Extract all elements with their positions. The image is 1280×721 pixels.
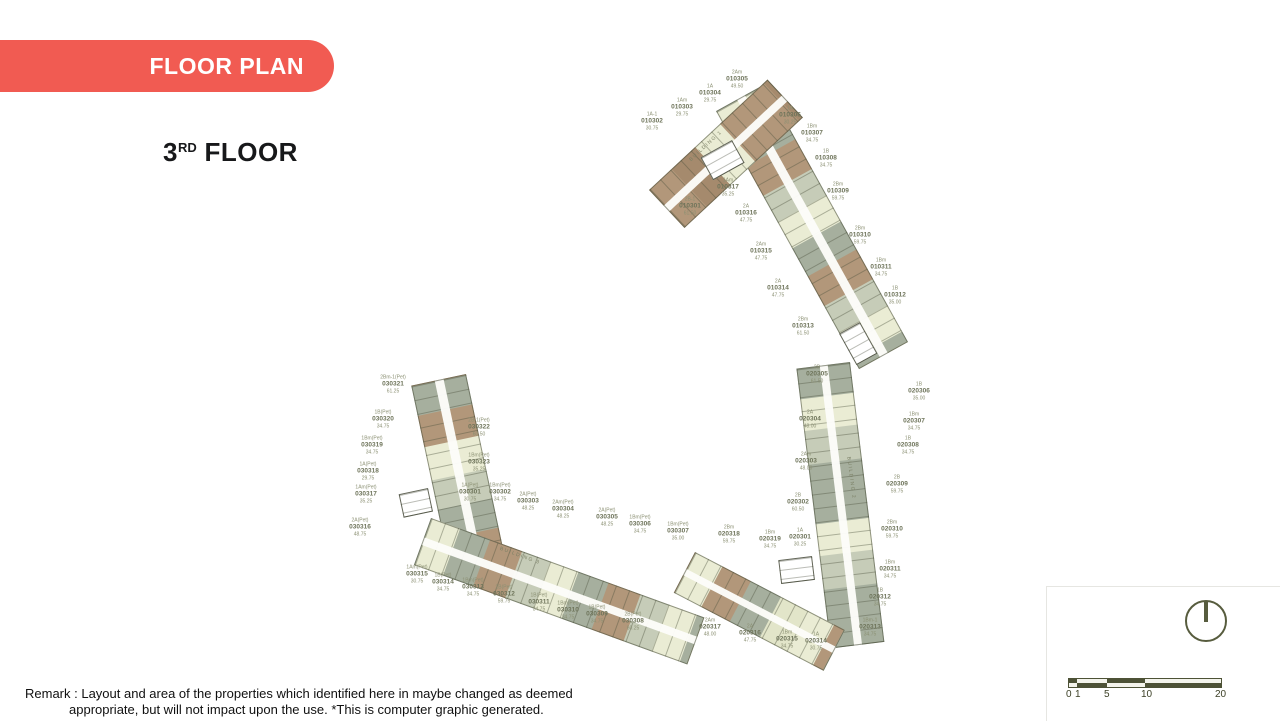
unit-label: 1B02030635.00 (908, 382, 930, 403)
unit-label-line: 34.75 (586, 619, 608, 625)
unit-label-line: 34.75 (432, 587, 454, 593)
unit-label: 1A02031430.75 (805, 632, 827, 653)
unit-label-line: 49.50 (726, 84, 748, 90)
unit-label: 1Bm(Pet)03031934.75 (361, 436, 383, 457)
unit-label-line: 59.75 (493, 599, 515, 605)
unit-label-line: 020311 (879, 566, 900, 574)
unit-label-line: 60.50 (787, 507, 809, 513)
unit-label-line: 010310 (849, 232, 871, 240)
unit-label: 1Bm(Pet)03030234.75 (489, 483, 511, 504)
unit-label-line: 020306 (908, 388, 930, 396)
unit-label-line: 48.25 (596, 522, 618, 528)
unit-label-line: 60.25 (622, 626, 644, 632)
unit-label: 1B(Pet)03031134.75 (528, 593, 549, 614)
unit-label-line: 010303 (671, 104, 693, 112)
unit-label-line: 030317 (355, 491, 377, 499)
unit-label: 1Bm(Pet)03030735.00 (667, 522, 689, 543)
floor-number: 3 (163, 137, 178, 167)
unit-label: 2A01031647.75 (735, 204, 757, 225)
scale-segment (1145, 683, 1221, 687)
unit-label-line: 30.75 (805, 646, 827, 652)
unit-label: 2Am01030549.50 (726, 70, 748, 91)
unit-label-line: 34.75 (372, 424, 394, 430)
unit-label: 1A-101030230.75 (641, 112, 663, 133)
scale-bar: 0151020 (1068, 678, 1220, 702)
unit-label-line: 34.75 (801, 138, 823, 144)
core-box (399, 488, 433, 518)
core-box (778, 556, 815, 584)
unit-label-line: 61.50 (679, 211, 701, 217)
unit-label-line: 59.75 (849, 240, 871, 246)
unit-label-line: 020301 (789, 534, 811, 542)
unit-label-line: 030303 (517, 498, 539, 506)
unit-label: 1Bm01031134.75 (870, 258, 891, 279)
unit-label-line: 020305 (806, 371, 828, 379)
scale-label: 1 (1075, 689, 1081, 700)
unit-label-line: 030314 (432, 579, 454, 587)
unit-label-line: 34.75 (815, 163, 837, 169)
unit-label: 1B01030834.75 (815, 149, 837, 170)
unit-label-line: 34.75 (528, 607, 549, 613)
scale-segment (1077, 683, 1107, 687)
unit-label-line: 030305 (596, 514, 618, 522)
unit-label-line: 59.75 (886, 489, 908, 495)
unit-label-line: 020302 (787, 499, 809, 507)
unit-label-line: 030304 (552, 506, 574, 514)
scale-label: 0 (1066, 689, 1072, 700)
unit-label: 2A(Pet)03030348.25 (517, 492, 539, 513)
unit-label-line: 030322 (468, 424, 490, 432)
unit-label-line: 020303 (795, 458, 817, 466)
unit-label: 1Bm02031534.75 (776, 630, 798, 651)
unit-label-line: 030309 (586, 611, 608, 619)
unit-label-line: 48.25 (517, 506, 539, 512)
unit-label-line: 34.75 (462, 592, 484, 598)
unit-label: 2Am02031748.00 (699, 618, 721, 639)
building-slab (414, 518, 705, 665)
unit-label-line: 59.75 (881, 534, 903, 540)
unit-label-line: 61.25 (380, 389, 406, 395)
unit-label: 2B02030561.50 (806, 365, 828, 386)
unit-label-line: 30.75 (406, 579, 428, 585)
unit-label-line: 60.50 (468, 432, 490, 438)
unit-label: 2Am01031547.75 (750, 242, 772, 263)
unit-label-line: 35.25 (355, 499, 377, 505)
scale-bar-segments (1068, 678, 1222, 688)
north-needle (1204, 601, 1208, 622)
unit-label: 1Am(Pet)03031530.75 (406, 565, 428, 586)
unit-label-line: 030316 (349, 524, 371, 532)
unit-label: 2B(Pet)03031259.75 (493, 585, 515, 606)
unit-label: 1A01030429.75 (699, 84, 721, 105)
unit-label-line: 48.00 (699, 632, 721, 638)
unit-label-line: 48.75 (349, 532, 371, 538)
unit-label-line: 35.25 (717, 192, 739, 198)
unit-label-line: 34.75 (870, 272, 891, 278)
unit-label-line: 020304 (799, 416, 821, 424)
unit-label-line: 030302 (489, 489, 511, 497)
unit-label-line: 010312 (884, 292, 906, 300)
unit-label-line: 030311 (528, 599, 549, 607)
scale-label: 20 (1215, 689, 1226, 700)
unit-label-line: 47.75 (767, 293, 789, 299)
remark-line-1: Remark : Layout and area of the properti… (25, 686, 573, 701)
unit-label: 2A(Pet)03030548.25 (596, 508, 618, 529)
unit-label-line: 61.50 (792, 331, 814, 337)
unit-label-line: 010302 (641, 118, 663, 126)
unit-label: 1B01031235.00 (884, 286, 906, 307)
unit-label-line: 020312 (869, 594, 891, 602)
remark-line-2: appropriate, but will not impact upon th… (69, 702, 544, 717)
unit-label: 1B(Pet)03030934.75 (586, 605, 608, 626)
unit-label: 2Bm-1(Pet)03032161.25 (380, 375, 406, 396)
unit-label: 1Bm(Pet)03031334.75 (462, 578, 484, 599)
unit-label-line: 30.25 (789, 542, 811, 548)
unit-label-line: 48.00 (799, 424, 821, 430)
unit-label-line: 020317 (699, 624, 721, 632)
unit-label: 2Bm01030959.75 (827, 182, 849, 203)
floor-word: FLOOR (197, 137, 298, 167)
unit-label-line: 030320 (372, 416, 394, 424)
unit-label: 1A02030130.25 (789, 528, 811, 549)
unit-label-line: 010311 (870, 264, 891, 272)
unit-label-line: 47.75 (750, 256, 772, 262)
unit-label-line: 030308 (622, 618, 644, 626)
unit-label: 1Bm-102031334.75 (859, 618, 881, 639)
floor-title: 3RD FLOOR (163, 137, 298, 168)
unit-label-line: 48.00 (795, 466, 817, 472)
north-indicator-icon (1185, 600, 1227, 642)
unit-label: 1B02031234.75 (869, 588, 891, 609)
unit-label-line: 010308 (815, 155, 837, 163)
unit-label-line: 010305 (726, 76, 748, 84)
unit-label: 2Bm01031059.75 (849, 226, 871, 247)
unit-label: 1B02030834.75 (897, 436, 919, 457)
unit-label-line: 010314 (767, 285, 789, 293)
unit-label-line: 020310 (881, 526, 903, 534)
unit-label-line: 30.75 (459, 497, 481, 503)
unit-label: 1Bm02030734.75 (903, 412, 925, 433)
unit-label-line: 59.75 (718, 539, 740, 545)
unit-label-line: 34.75 (629, 529, 651, 535)
unit-label: 1Bm(Pet)03030634.75 (629, 515, 651, 536)
unit-label: 1Bm(Pet)03032335.25 (468, 453, 490, 474)
unit-label-line: 34.75 (903, 426, 925, 432)
unit-label-line: 030313 (462, 584, 484, 592)
unit-label-line: 61.50 (806, 379, 828, 385)
unit-label: 2Bm02031859.75 (718, 525, 740, 546)
unit-label-line: 010316 (735, 210, 757, 218)
unit-label: 1Bm02031934.75 (759, 530, 781, 551)
unit-label-line: 010315 (750, 248, 772, 256)
unit-label-line: 30.75 (641, 126, 663, 132)
unit-label: 1B(Pet)03032034.75 (372, 410, 394, 431)
unit-label-line: 020313 (859, 624, 881, 632)
scale-label: 5 (1104, 689, 1110, 700)
unit-label: 2B-1(Pet)03032260.50 (468, 418, 490, 439)
unit-label-line: 010307 (801, 130, 823, 138)
floor-plan-badge-label: FLOOR PLAN (150, 53, 305, 80)
unit-label: 1Bm(Pet)03031034.75 (557, 601, 579, 622)
scale-segment (1107, 683, 1145, 687)
unit-label-line: 030307 (667, 528, 689, 536)
unit-label: 1Am(Pet)03031735.25 (355, 485, 377, 506)
unit-label: 1B(Pet)03031434.75 (432, 573, 454, 594)
unit-label: 2A02030448.00 (799, 410, 821, 431)
unit-label-line: 020319 (759, 536, 781, 544)
unit-label: 1A(Pet)03031829.75 (357, 462, 379, 483)
unit-label-line: 030319 (361, 442, 383, 450)
unit-label: 2A(Pet)03031648.75 (349, 518, 371, 539)
scale-segment (1069, 683, 1077, 687)
unit-label-line: 34.75 (859, 632, 881, 638)
unit-label-line: 020315 (776, 636, 798, 644)
unit-label-line: 020307 (903, 418, 925, 426)
unit-label: 1Am01030329.75 (671, 98, 693, 119)
unit-label-line: 030321 (380, 381, 406, 389)
floor-plan-badge: FLOOR PLAN (0, 40, 334, 92)
unit-label-line: 020308 (897, 442, 919, 450)
unit-label: 2A01031447.75 (767, 279, 789, 300)
building-slab (674, 552, 845, 671)
unit-label-line: 35.25 (468, 467, 490, 473)
unit-label-line: 34.75 (869, 602, 891, 608)
unit-label-line: 010306 (779, 112, 801, 120)
unit-label-line: 010309 (827, 188, 849, 196)
unit-label: 1Bm01030734.75 (801, 124, 823, 145)
unit-label-line: 35.00 (667, 536, 689, 542)
unit-label: 2Bm02031059.75 (881, 520, 903, 541)
unit-label: 1A(Pet)03030130.75 (459, 483, 481, 504)
unit-label-line: 030310 (557, 607, 579, 615)
unit-label: 1A01030630.25 (779, 106, 801, 127)
unit-label-line: 29.75 (671, 112, 693, 118)
unit-label: 1Am01031735.25 (717, 178, 739, 199)
unit-label-line: 030306 (629, 521, 651, 529)
unit-label: 2B-101030161.50 (679, 197, 701, 218)
unit-label-line: 030318 (357, 468, 379, 476)
unit-label-line: 030315 (406, 571, 428, 579)
unit-label-line: 010301 (679, 203, 701, 211)
unit-label-line: 29.75 (699, 98, 721, 104)
unit-label-line: 34.75 (489, 497, 511, 503)
unit-label-line: 34.75 (879, 574, 900, 580)
unit-label-line: 34.75 (759, 544, 781, 550)
unit-label-line: 35.00 (908, 396, 930, 402)
unit-label-line: 030312 (493, 591, 515, 599)
unit-label-line: 34.75 (776, 644, 798, 650)
unit-label-line: 020318 (718, 531, 740, 539)
unit-label-line: 030323 (468, 459, 490, 467)
unit-label-line: 47.75 (739, 638, 761, 644)
unit-label-line: 47.75 (735, 218, 757, 224)
unit-label-line: 30.25 (779, 120, 801, 126)
unit-label-line: 020316 (739, 630, 761, 638)
unit-label: 2Bm01031361.50 (792, 317, 814, 338)
unit-label: 2Am(Pet)03030448.25 (552, 500, 574, 521)
unit-label-line: 35.00 (884, 300, 906, 306)
unit-label-line: 020314 (805, 638, 827, 646)
unit-label: 1Bm02031134.75 (879, 560, 900, 581)
unit-label-line: 020309 (886, 481, 908, 489)
scale-label: 10 (1141, 689, 1152, 700)
floor-suffix: RD (178, 140, 197, 155)
unit-label-line: 010317 (717, 184, 739, 192)
unit-label-line: 030301 (459, 489, 481, 497)
unit-label-line: 010304 (699, 90, 721, 98)
unit-label-line: 29.75 (357, 476, 379, 482)
unit-label-line: 34.75 (361, 450, 383, 456)
unit-label: 2Am02030348.00 (795, 452, 817, 473)
slide-canvas: FLOOR PLAN 3RD FLOOR BUILDING 12B-101030… (0, 0, 1280, 720)
unit-label-line: 34.75 (557, 615, 579, 621)
unit-label-line: 010313 (792, 323, 814, 331)
unit-label: 2B(Pet)03030860.25 (622, 612, 644, 633)
unit-label: 2A02031647.75 (739, 624, 761, 645)
unit-label-line: 59.75 (827, 196, 849, 202)
unit-label-line: 48.25 (552, 514, 574, 520)
unit-label: 2B02030260.50 (787, 493, 809, 514)
unit-label: 2B02030959.75 (886, 475, 908, 496)
unit-label-line: 34.75 (897, 450, 919, 456)
